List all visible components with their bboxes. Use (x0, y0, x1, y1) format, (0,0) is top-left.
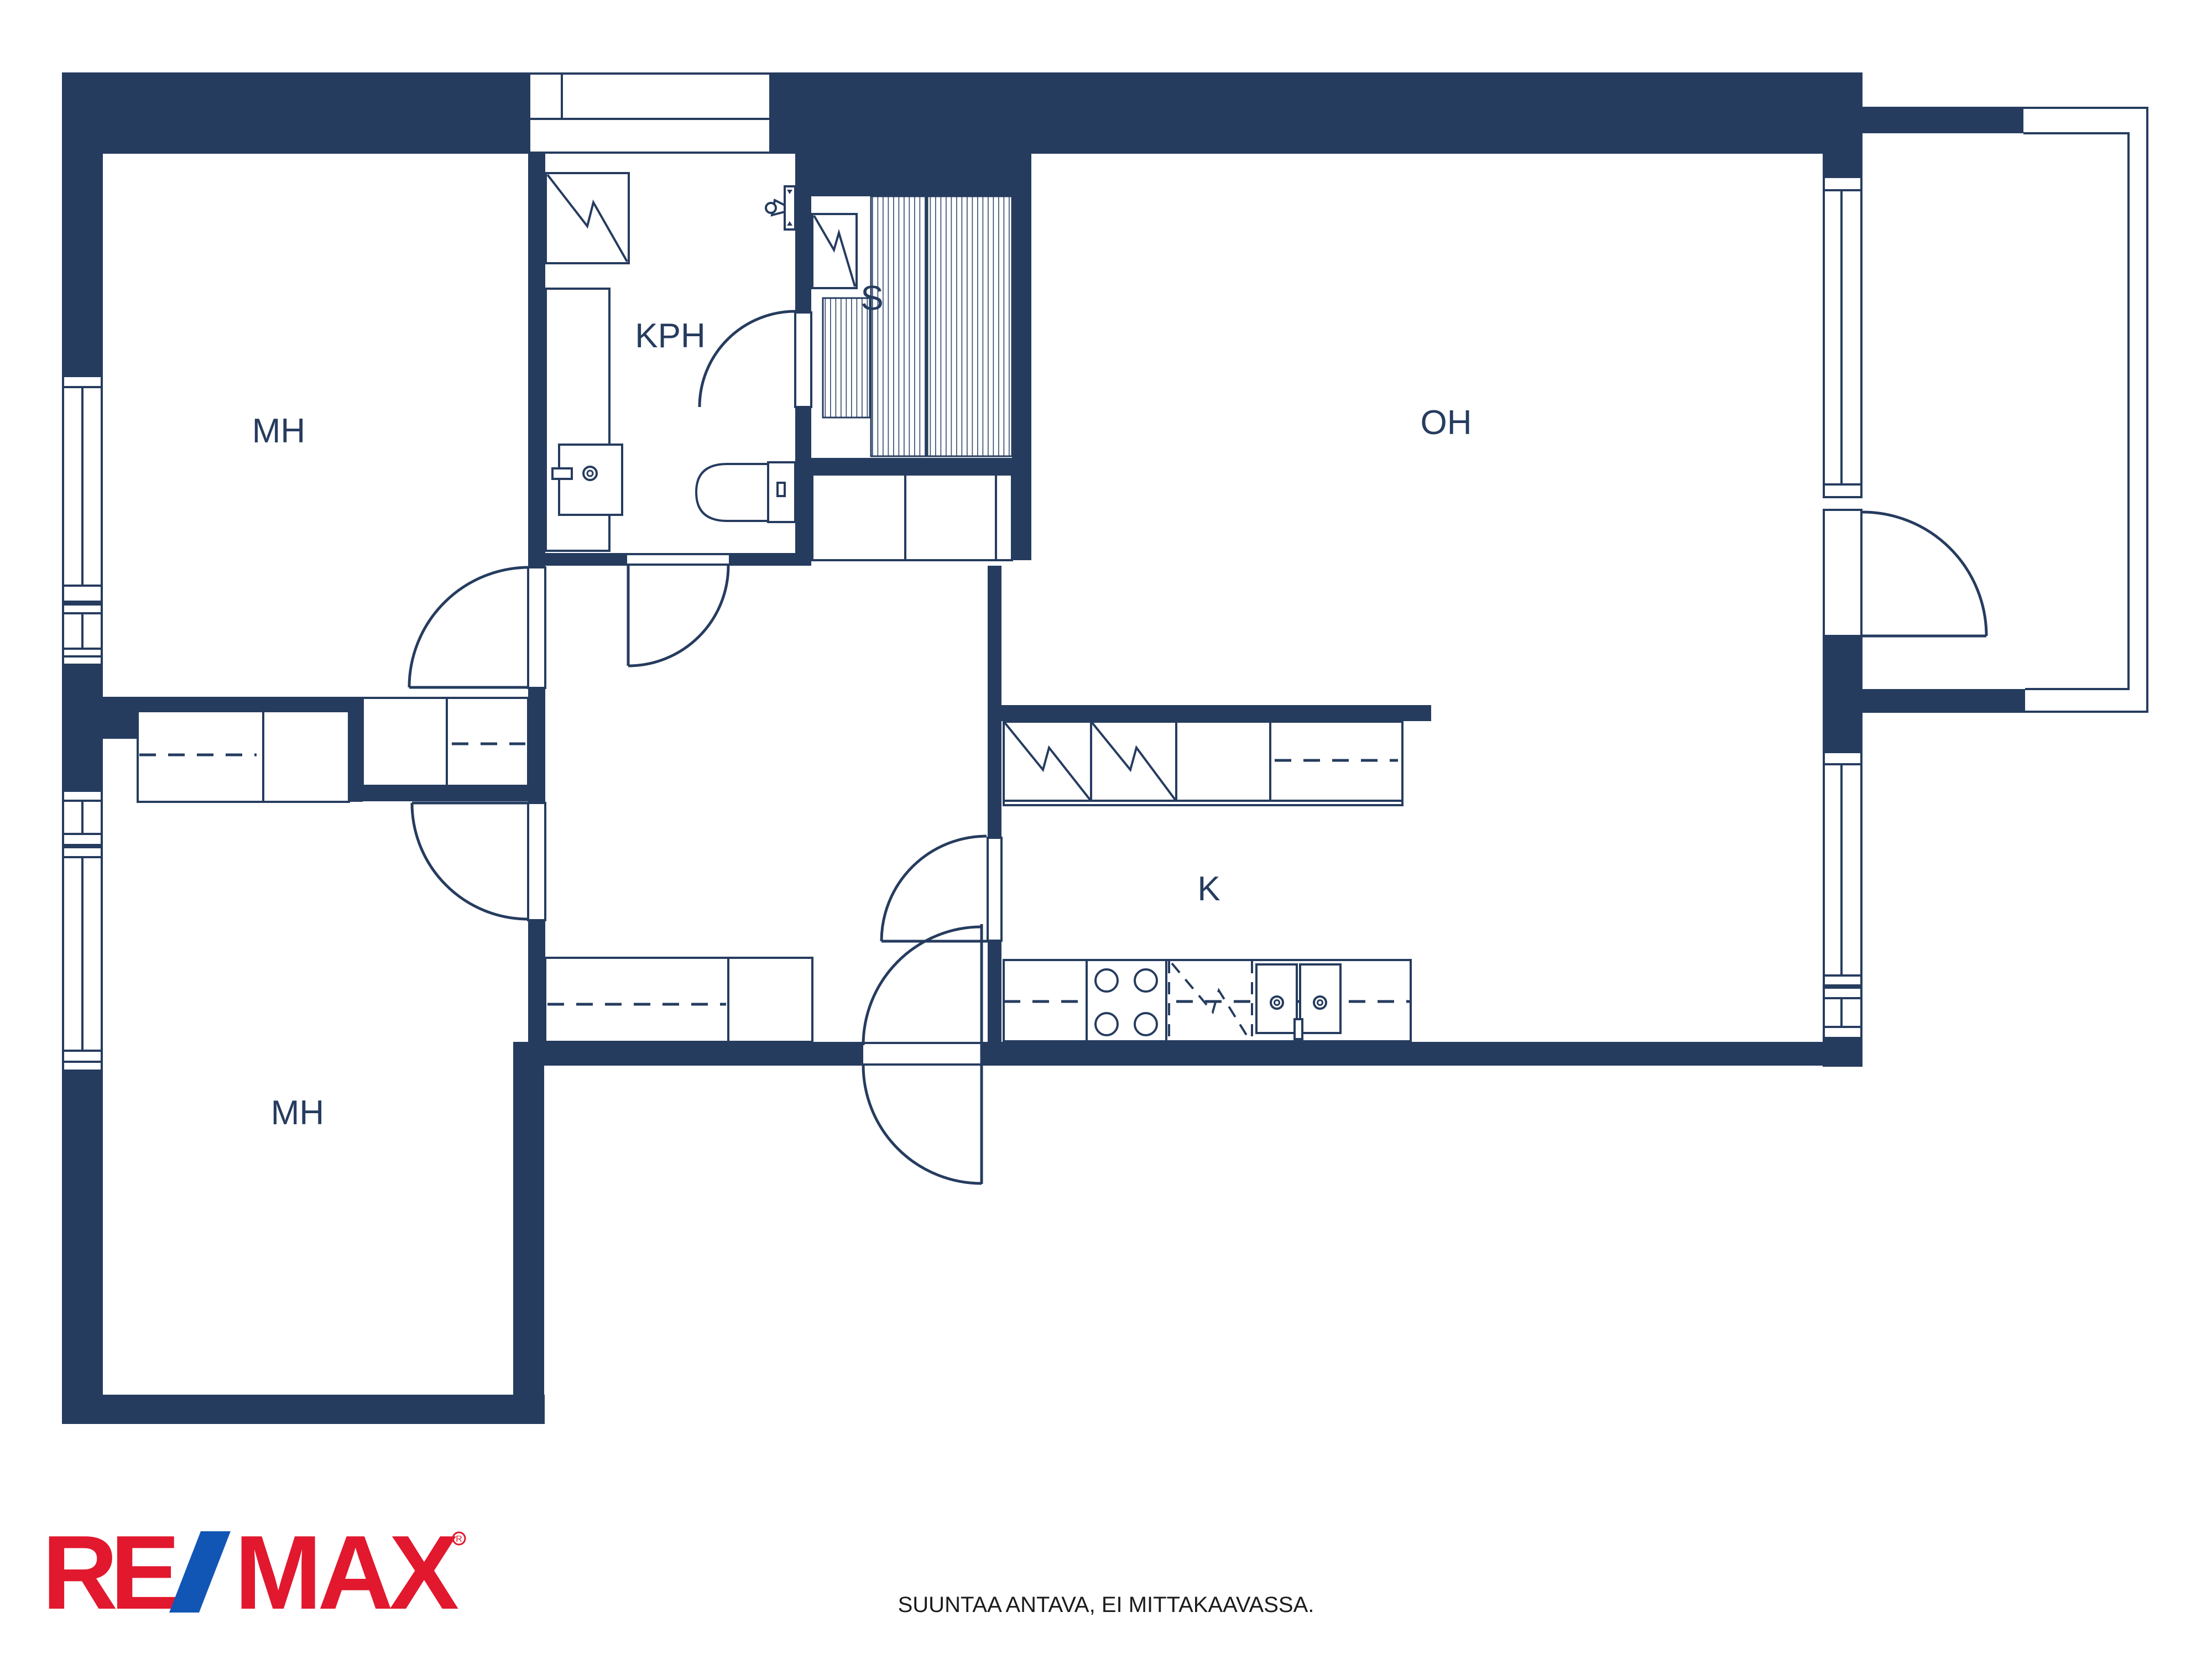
svg-text:SUUNTAA ANTAVA, EI MITTAKAAVAS: SUUNTAA ANTAVA, EI MITTAKAAVASSA. (898, 1593, 1314, 1617)
svg-text:R: R (456, 1535, 462, 1544)
svg-text:RE: RE (42, 1514, 176, 1631)
svg-text:OH: OH (1421, 404, 1472, 442)
svg-text:MAX: MAX (234, 1514, 458, 1631)
svg-text:MH: MH (252, 412, 305, 450)
svg-text:KPH: KPH (635, 317, 705, 355)
svg-text:MH: MH (271, 1094, 324, 1132)
svg-text:S: S (860, 279, 883, 317)
svg-text:K: K (1197, 870, 1220, 908)
